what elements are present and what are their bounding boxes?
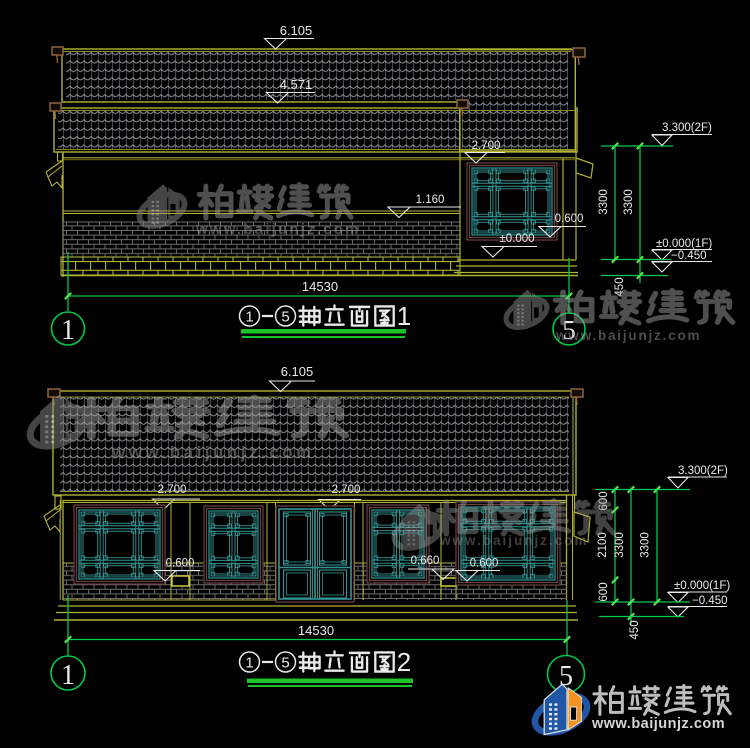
svg-text:0.600: 0.600 <box>555 213 584 225</box>
svg-text:3300: 3300 <box>623 189 635 215</box>
svg-text:2.700: 2.700 <box>158 484 187 496</box>
svg-text:1: 1 <box>245 655 253 672</box>
svg-text:www.baijunjz.com: www.baijunjz.com <box>591 716 725 732</box>
svg-text:1: 1 <box>397 301 411 331</box>
svg-text:0.600: 0.600 <box>166 558 195 570</box>
svg-text:www.baijunjz.com: www.baijunjz.com <box>439 533 589 548</box>
svg-text:www.baijunjz.com: www.baijunjz.com <box>195 221 361 238</box>
svg-text:1: 1 <box>61 660 75 691</box>
svg-text:±0.000: ±0.000 <box>499 233 534 245</box>
svg-text:www.baijunjz.com: www.baijunjz.com <box>555 328 701 343</box>
svg-text:5: 5 <box>281 309 289 326</box>
svg-text:±0.000(1F): ±0.000(1F) <box>656 238 712 250</box>
svg-text:−0.450: −0.450 <box>671 250 707 262</box>
svg-text:−0.450: −0.450 <box>692 595 728 607</box>
svg-text:3300: 3300 <box>598 189 610 215</box>
svg-text:2.700: 2.700 <box>472 140 501 152</box>
svg-text:450: 450 <box>629 620 641 639</box>
svg-text:14530: 14530 <box>302 279 338 294</box>
svg-text:0.600: 0.600 <box>470 558 499 570</box>
svg-text:6.105: 6.105 <box>280 23 313 38</box>
svg-text:14530: 14530 <box>298 623 334 638</box>
svg-text:5: 5 <box>281 655 289 672</box>
svg-text:600: 600 <box>598 582 610 601</box>
svg-text:1: 1 <box>245 309 253 326</box>
svg-text:±0.000(1F): ±0.000(1F) <box>674 580 730 592</box>
svg-text:2.700: 2.700 <box>332 484 361 496</box>
svg-text:2100: 2100 <box>597 532 609 558</box>
svg-text:2: 2 <box>397 647 411 677</box>
svg-text:1: 1 <box>61 315 75 346</box>
svg-text:3.300(2F): 3.300(2F) <box>662 122 712 134</box>
svg-text:1.160: 1.160 <box>416 194 445 206</box>
svg-text:6.105: 6.105 <box>281 364 314 379</box>
svg-text:4.571: 4.571 <box>280 77 313 92</box>
svg-text:3300: 3300 <box>640 532 652 558</box>
svg-text:3300: 3300 <box>614 532 626 558</box>
svg-text:3.300(2F): 3.300(2F) <box>678 465 728 477</box>
svg-text:www.baijunjz.com: www.baijunjz.com <box>111 443 315 462</box>
svg-text:0.660: 0.660 <box>411 555 440 567</box>
